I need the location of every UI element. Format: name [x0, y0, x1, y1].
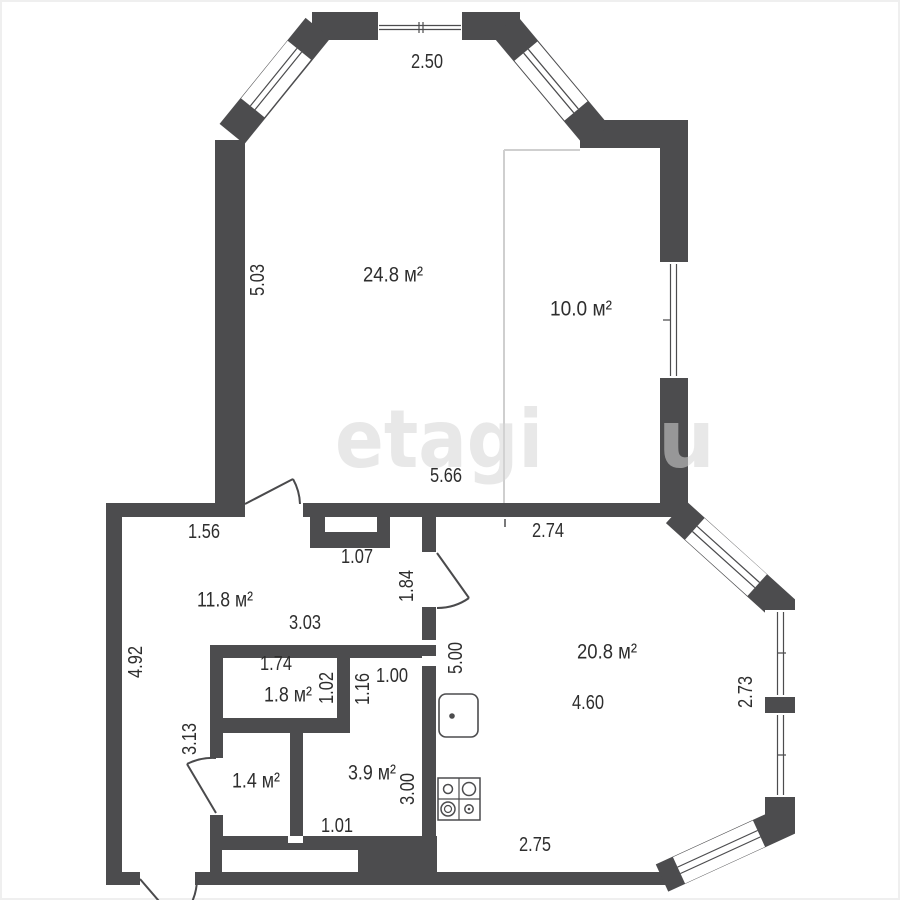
room-label-hallway: 11.8 м² — [197, 589, 253, 612]
dim-left-height-lower: 4.92 — [125, 646, 147, 678]
dim-hall-door-height: 1.84 — [396, 570, 418, 602]
room-label-kitchen: 20.8 м² — [577, 641, 637, 664]
window-bay-upper-diagonal — [685, 518, 767, 596]
dim-bathroom-width: 1.74 — [260, 653, 292, 675]
dim-kitchen-left-height: 5.00 — [445, 642, 467, 674]
door-entrance — [140, 879, 197, 900]
window-diagonal-right — [514, 41, 587, 120]
door-living-room — [245, 479, 300, 504]
room-label-wc: 1.4 м² — [232, 770, 280, 793]
window-diagonal-left — [241, 41, 311, 117]
room-label-alcove: 10.0 м² — [550, 298, 612, 321]
window-bay-lower-diagonal — [673, 820, 765, 883]
door-kitchen — [437, 553, 469, 608]
door-wc — [187, 758, 216, 813]
window-bay-right-lower — [765, 713, 795, 797]
dim-top-width: 2.50 — [411, 51, 443, 73]
dim-passage-width: 1.00 — [376, 665, 408, 687]
dim-passage-height: 1.16 — [352, 673, 374, 705]
room-label-living: 24.8 м² — [363, 264, 423, 287]
dim-storage-bottom-width: 1.01 — [321, 815, 353, 837]
stove-icon — [438, 778, 480, 820]
window-bay-right-upper — [765, 610, 795, 697]
dim-kitchen-right-height: 2.73 — [735, 676, 757, 708]
window-alcove-right — [660, 262, 688, 378]
floor-plan-canvas: 24.8 м² 10.0 м² 11.8 м² 1.8 м² 1.4 м² 3.… — [0, 0, 900, 900]
dim-left-height-upper: 5.03 — [247, 264, 269, 296]
dim-bathroom-height: 1.02 — [316, 672, 338, 704]
dim-corridor-height: 3.13 — [179, 723, 201, 755]
dim-alcove-bottom-width: 2.74 — [532, 520, 564, 542]
window-top — [378, 12, 462, 40]
dim-shaft-width: 1.07 — [341, 546, 373, 568]
sink-icon — [439, 694, 478, 737]
dim-storage-height: 3.00 — [397, 773, 419, 805]
watermark-text: etagi — [335, 393, 543, 486]
dim-hall-width: 3.03 — [289, 612, 321, 634]
room-label-storage: 3.9 м² — [348, 762, 396, 785]
watermark-partial: u — [658, 393, 715, 486]
floor-plan: 24.8 м² 10.0 м² 11.8 м² 1.8 м² 1.4 м² 3.… — [0, 0, 900, 900]
dim-kitchen-bottom-width: 2.75 — [519, 834, 551, 856]
room-label-bathroom: 1.8 м² — [264, 684, 312, 707]
dim-hall-top-width: 1.56 — [188, 521, 220, 543]
dim-kitchen-width: 4.60 — [572, 692, 604, 714]
